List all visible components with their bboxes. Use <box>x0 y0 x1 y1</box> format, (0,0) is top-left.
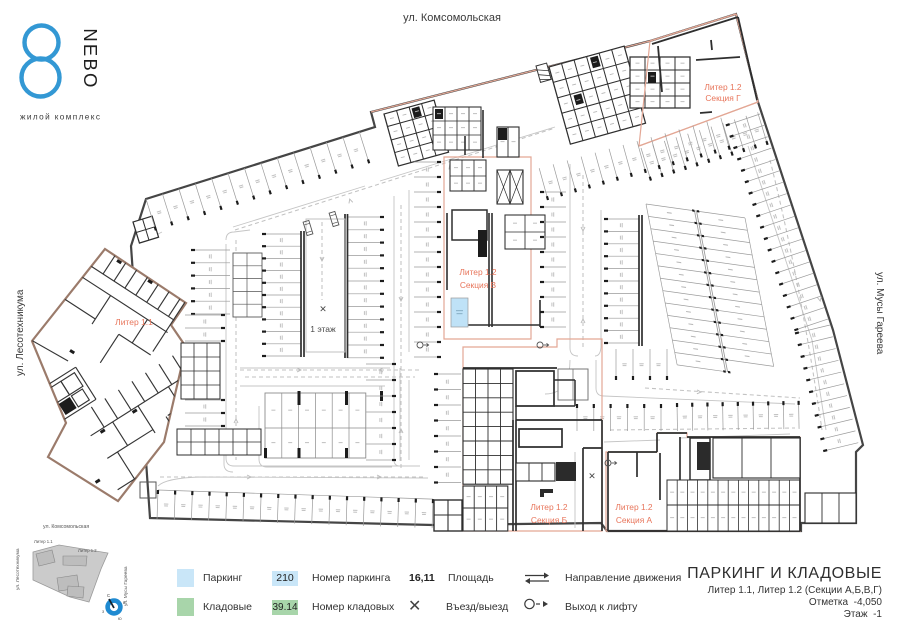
svg-text:Секция Г: Секция Г <box>705 93 741 103</box>
svg-text:ул. Лесотехникума: ул. Лесотехникума <box>15 548 21 590</box>
svg-text:Секция А: Секция А <box>616 515 653 525</box>
svg-text:Литер 1.2: Литер 1.2 <box>78 548 97 553</box>
svg-text:Литер 1.2: Литер 1.2 <box>459 267 497 277</box>
svg-text:жилой комплекс: жилой комплекс <box>20 113 101 122</box>
svg-text:З: З <box>102 610 104 614</box>
svg-text:✕: ✕ <box>588 471 596 481</box>
svg-text:Секция В: Секция В <box>460 280 497 290</box>
svg-text:✕: ✕ <box>319 304 327 314</box>
svg-text:Литер 1.2: Литер 1.2 <box>530 502 568 512</box>
svg-text:1 этаж: 1 этаж <box>310 324 336 334</box>
svg-text:NEBO: NEBO <box>80 28 101 89</box>
svg-text:Литер 1.1: Литер 1.1 <box>115 317 153 327</box>
svg-text:Литер 1.1: Литер 1.1 <box>34 539 53 544</box>
svg-text:C: C <box>107 593 110 598</box>
svg-text:Секция Б: Секция Б <box>531 515 568 525</box>
svg-text:Ю: Ю <box>118 617 122 621</box>
svg-text:ул. Комсомольская: ул. Комсомольская <box>43 524 89 530</box>
svg-text:Литер 1.2: Литер 1.2 <box>615 502 653 512</box>
svg-text:Литер 1.2: Литер 1.2 <box>704 82 742 92</box>
